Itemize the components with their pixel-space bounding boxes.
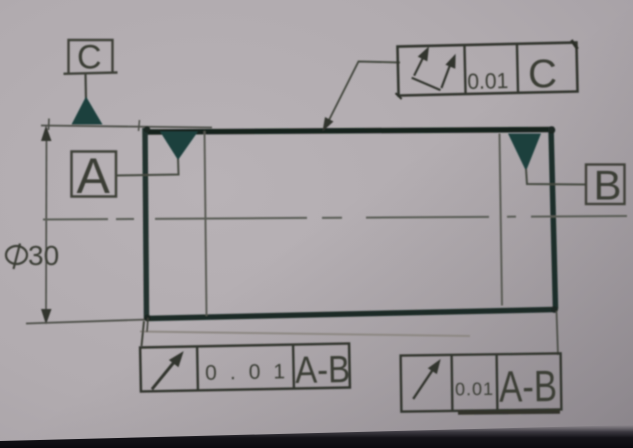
svg-text:B: B (594, 162, 622, 209)
svg-text:A-B: A-B (499, 362, 558, 412)
svg-text:0.01: 0.01 (467, 68, 509, 94)
svg-text:A-B: A-B (295, 349, 351, 392)
svg-text:C: C (77, 39, 102, 77)
svg-text:30: 30 (28, 240, 59, 271)
svg-text:C: C (528, 52, 558, 97)
svg-text:A: A (77, 148, 111, 204)
svg-text:0.01: 0.01 (455, 379, 493, 400)
